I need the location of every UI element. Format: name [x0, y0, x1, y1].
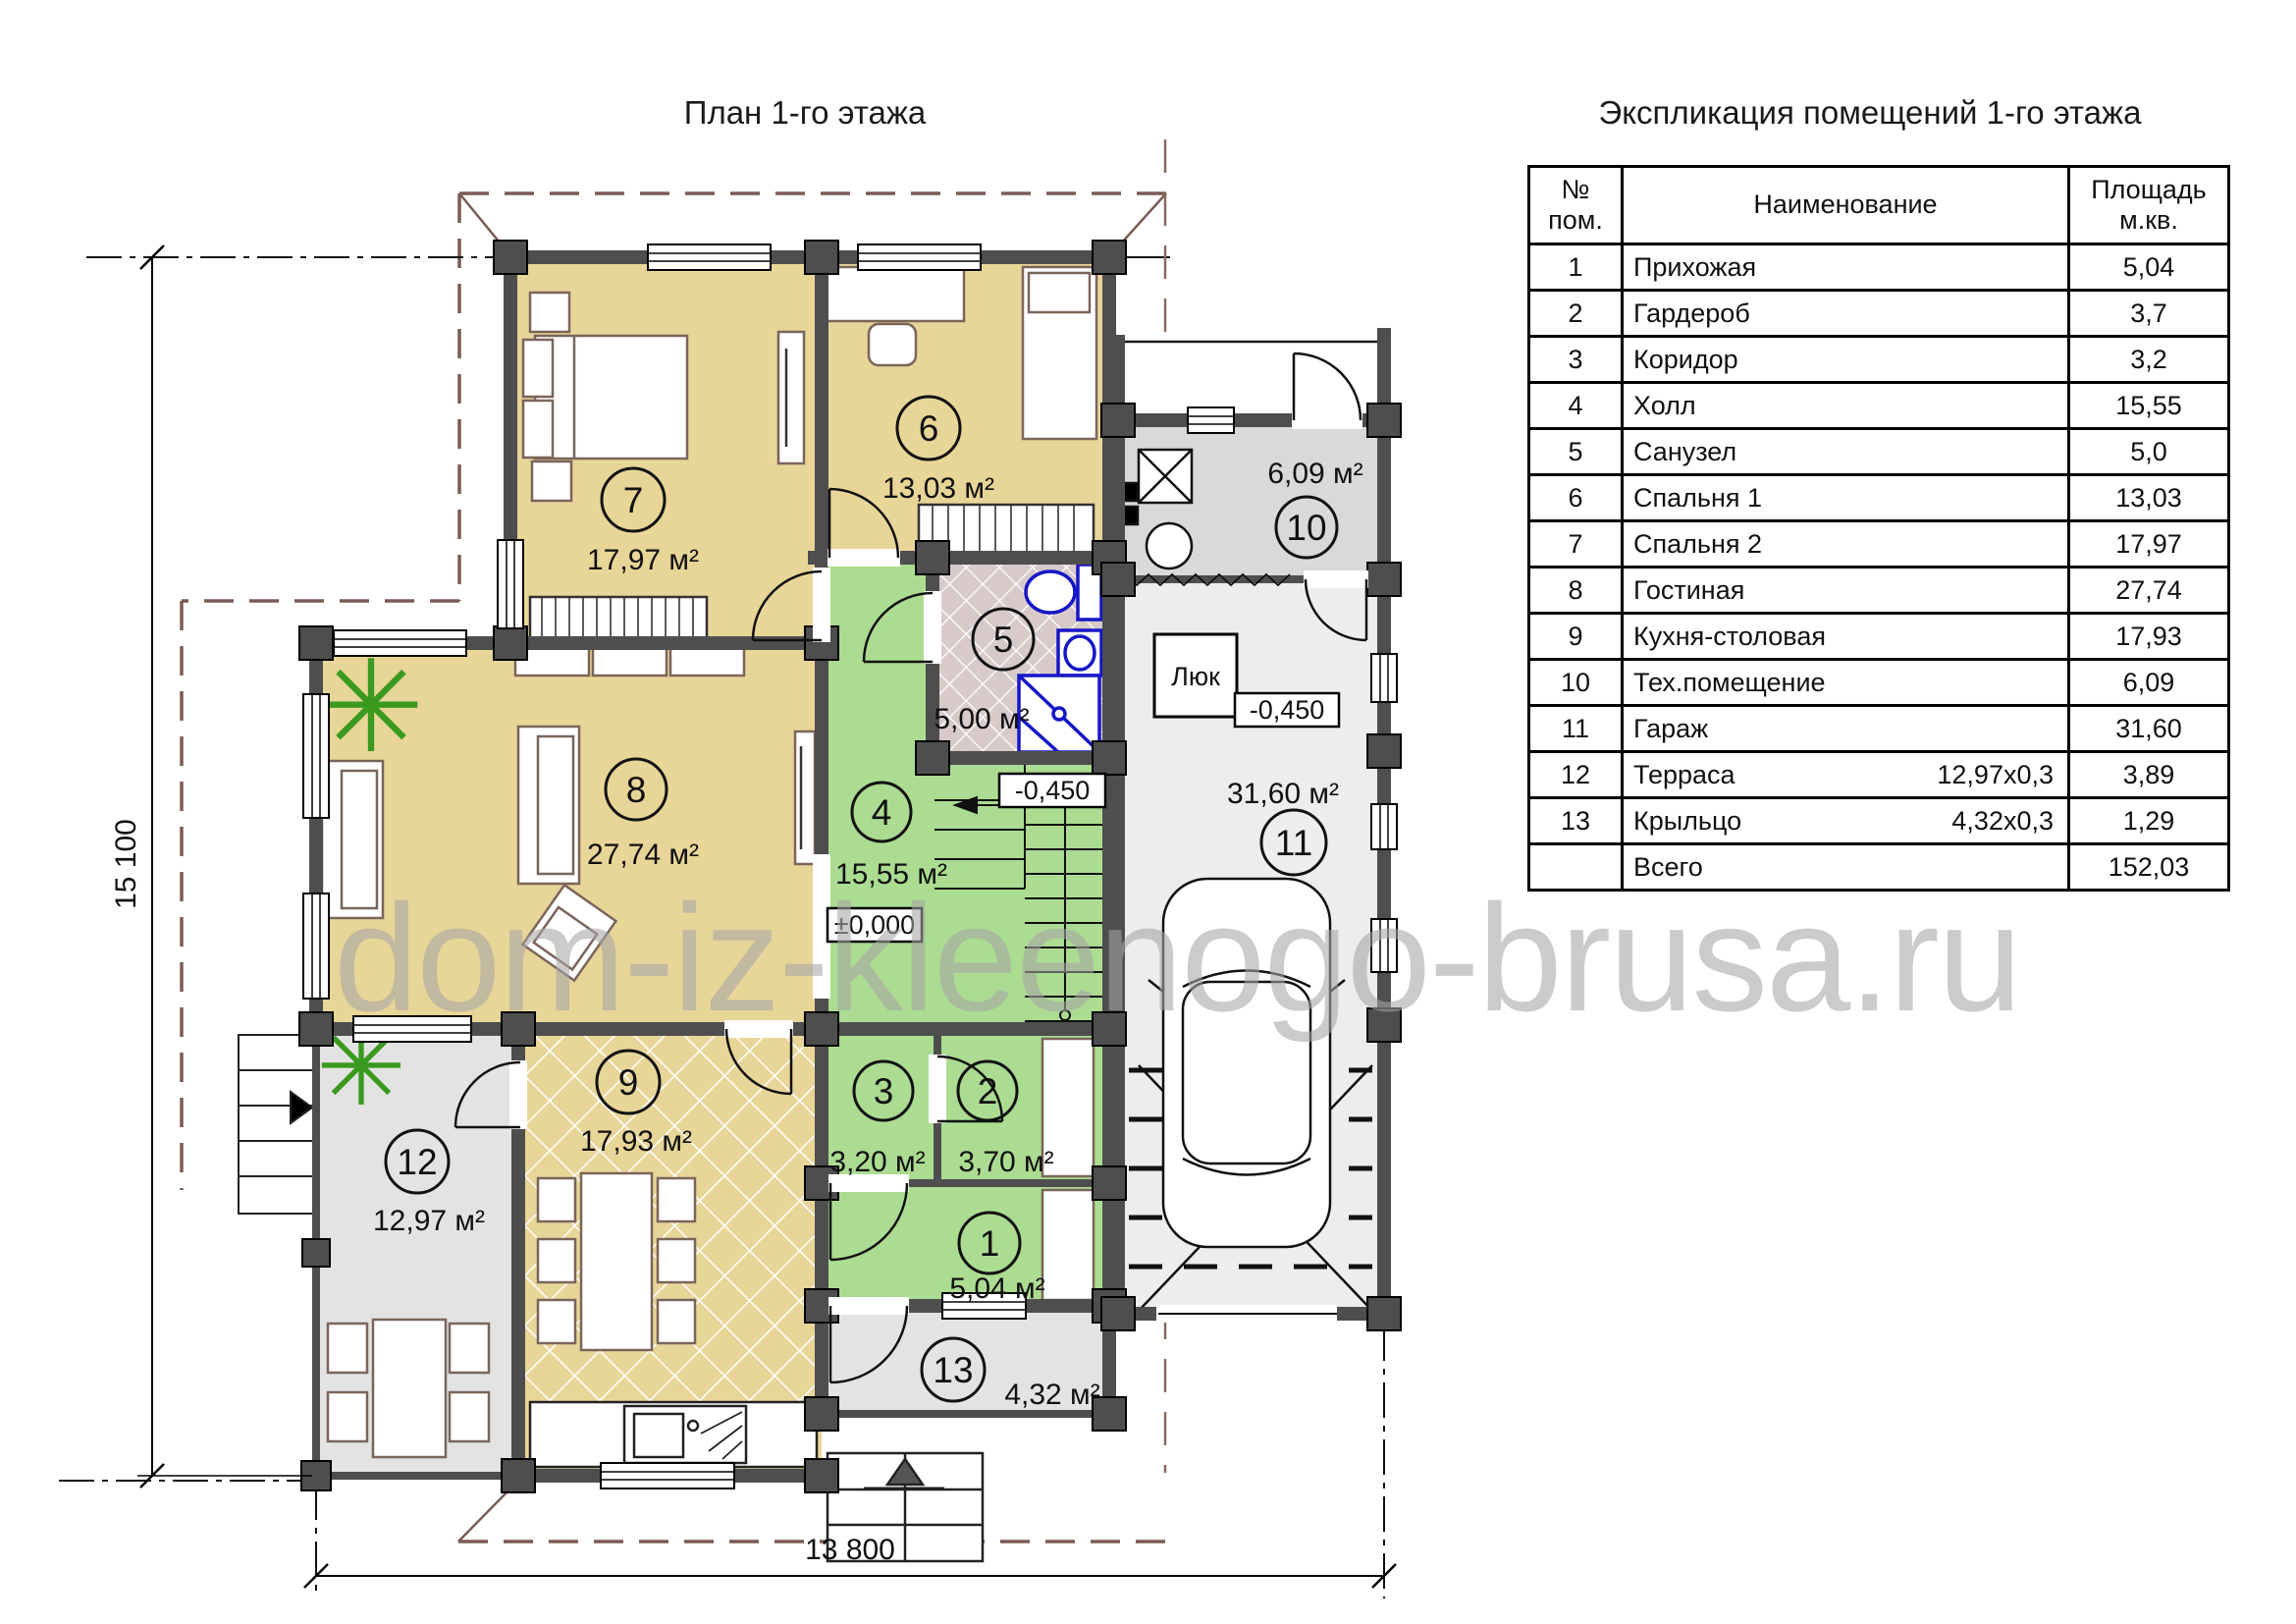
- dining-table-kitchen: [538, 1173, 695, 1350]
- cell-room-number: 3: [1529, 337, 1623, 383]
- table-row: 6Спальня 113,03: [1529, 475, 2229, 521]
- cell-room-area: 31,60: [2069, 706, 2229, 752]
- cell-room-area: 17,97: [2069, 521, 2229, 568]
- room-number: 12: [397, 1142, 437, 1182]
- cell-room-number: 8: [1529, 568, 1623, 614]
- cell-room-area: 3,2: [2069, 337, 2229, 383]
- table-row: 4Холл15,55: [1529, 383, 2229, 429]
- sideboard-room8: [515, 648, 744, 676]
- dimension-height: [137, 245, 312, 1488]
- header-area-line2: м.кв.: [2070, 205, 2227, 236]
- cell-room-name: Гардероб: [1623, 291, 2069, 337]
- car: [1148, 879, 1345, 1247]
- room-area: 15,55 м²: [835, 858, 947, 891]
- header-num-line1: №: [1530, 175, 1621, 205]
- room-number: 8: [626, 770, 647, 810]
- cell-room-name: Гараж: [1623, 706, 2069, 752]
- cell-room-number: 4: [1529, 383, 1623, 429]
- room-name-text: Холл: [1633, 391, 1696, 421]
- bed-single: [1023, 267, 1096, 439]
- room-number: 9: [618, 1062, 639, 1103]
- cell-room-name: Крыльцо4,32х0,3: [1623, 798, 2069, 844]
- sink-icon: [1058, 630, 1101, 676]
- room-area: 27,74 м²: [587, 839, 699, 871]
- cell-room-name: Спальня 1: [1623, 475, 2069, 521]
- hatch-label: Люк: [1171, 662, 1220, 691]
- cell-room-number: 11: [1529, 706, 1623, 752]
- tv-cabinet-room7: [778, 332, 804, 463]
- cell-room-area: 15,55: [2069, 383, 2229, 429]
- room-area: 4,32 м²: [1004, 1379, 1099, 1411]
- cell-room-number: 13: [1529, 798, 1623, 844]
- room-dims-text: 4,32х0,3: [1951, 806, 2054, 837]
- room-name-text: Санузел: [1633, 437, 1736, 467]
- cell-room-number: 2: [1529, 291, 1623, 337]
- cell-room-number: 5: [1529, 429, 1623, 475]
- plan-title: План 1-го этажа: [510, 94, 1099, 132]
- cell-room-number: 1: [1529, 244, 1623, 291]
- cell-room-name: Гостиная: [1623, 568, 2069, 614]
- zero-level-label: ±0,000: [834, 910, 915, 940]
- cell-room-number: 10: [1529, 660, 1623, 706]
- room-area: 31,60 м²: [1227, 778, 1339, 810]
- stairs-level-label: -0,450: [1015, 776, 1091, 805]
- room-dims-text: 12,97х0,3: [1937, 760, 2054, 790]
- table-row: 5Санузел5,0: [1529, 429, 2229, 475]
- explication-body: 1Прихожая5,042Гардероб3,73Коридор3,24Хол…: [1529, 244, 2229, 891]
- cell-room-number: 9: [1529, 614, 1623, 660]
- cell-room-name: Прихожая: [1623, 244, 2069, 291]
- cell-room-name: Коридор: [1623, 337, 2069, 383]
- closet-room1: [1042, 1190, 1094, 1300]
- room-area: 12,97 м²: [373, 1205, 485, 1237]
- room-number: 5: [993, 620, 1014, 660]
- room-area: 3,20 м²: [829, 1146, 925, 1178]
- room-name-text: Тех.помещение: [1633, 668, 1826, 698]
- table-row: 7Спальня 217,97: [1529, 521, 2229, 568]
- garage-level-label: -0,450: [1250, 695, 1325, 725]
- cell-room-area: 13,03: [2069, 475, 2229, 521]
- header-cell-name: Наименование: [1623, 167, 2069, 244]
- room-area: 3,70 м²: [958, 1146, 1053, 1178]
- dimension-height-label: 15 100: [110, 819, 142, 909]
- cell-room-name: Кухня-столовая: [1623, 614, 2069, 660]
- sofa-left: [322, 761, 383, 918]
- table-row: 13Крыльцо4,32х0,31,29: [1529, 798, 2229, 844]
- cell-room-number: [1529, 844, 1623, 891]
- header-num-line2: пом.: [1530, 205, 1621, 236]
- table-row: 2Гардероб3,7: [1529, 291, 2229, 337]
- cell-room-area: 152,03: [2069, 844, 2229, 891]
- explication-table: № пом. Наименование Площадь м.кв. 1Прихо…: [1527, 165, 2230, 892]
- header-cell-num: № пом.: [1529, 167, 1623, 244]
- explication-title: Экспликация помещений 1-го этажа: [1520, 94, 2220, 132]
- room-name-text: Коридор: [1633, 345, 1738, 375]
- room-number: 3: [874, 1071, 894, 1111]
- table-row: 3Коридор3,2: [1529, 337, 2229, 383]
- room-number: 11: [1275, 823, 1312, 863]
- cell-room-number: 7: [1529, 521, 1623, 568]
- room-number: 4: [872, 792, 892, 833]
- header-row: № пом. Наименование Площадь м.кв.: [1529, 167, 2229, 244]
- room-number: 1: [980, 1223, 1000, 1264]
- room-name-text: Спальня 1: [1633, 483, 1762, 514]
- cell-room-area: 3,89: [2069, 752, 2229, 798]
- room-number: 10: [1286, 508, 1326, 548]
- dimension-width: [304, 1564, 1396, 1588]
- cell-room-name: Тех.помещение: [1623, 660, 2069, 706]
- washer-icon: [1139, 450, 1192, 503]
- room-area: 6,09 м²: [1267, 458, 1362, 490]
- dimension-width-label: 13 800: [805, 1534, 895, 1566]
- table-row: 10Тех.помещение6,09: [1529, 660, 2229, 706]
- table-row: 12Терраса12,97х0,33,89: [1529, 752, 2229, 798]
- room-number: 7: [623, 480, 644, 520]
- table-row: 1Прихожая5,04: [1529, 244, 2229, 291]
- room-name-text: Всего: [1633, 852, 1703, 883]
- cell-room-name: Холл: [1623, 383, 2069, 429]
- cell-room-area: 1,29: [2069, 798, 2229, 844]
- room-area: 17,93 м²: [580, 1125, 692, 1158]
- floor-plan-page: ✳ ✳: [0, 0, 2296, 1624]
- table-row: Всего152,03: [1529, 844, 2229, 891]
- room-name-text: Терраса: [1633, 760, 1735, 790]
- sofa-center: [518, 727, 579, 884]
- room-area: 13,03 м²: [882, 472, 994, 505]
- room-name-text: Спальня 2: [1633, 529, 1762, 560]
- room-area: 17,97 м²: [587, 544, 699, 576]
- cell-room-name: Санузел: [1623, 429, 2069, 475]
- header-area-line1: Площадь: [2070, 175, 2227, 205]
- room-area: 5,04 м²: [949, 1272, 1044, 1305]
- entry-porch-fill: [1114, 342, 1384, 420]
- cell-room-area: 27,74: [2069, 568, 2229, 614]
- table-row: 8Гостиная27,74: [1529, 568, 2229, 614]
- room-area: 5,00 м²: [934, 703, 1029, 735]
- room-name-text: Гараж: [1633, 714, 1708, 744]
- header-cell-area: Площадь м.кв.: [2069, 167, 2229, 244]
- cell-room-area: 6,09: [2069, 660, 2229, 706]
- terrace-stairs: [239, 1035, 315, 1214]
- room-number: 13: [933, 1350, 973, 1390]
- room-number: 6: [919, 408, 939, 449]
- room-name-text: Гостиная: [1633, 575, 1744, 606]
- room-number: 2: [978, 1071, 998, 1111]
- explication-header: № пом. Наименование Площадь м.кв.: [1529, 167, 2229, 244]
- kitchen-counter: [530, 1402, 817, 1467]
- tv-room8: [795, 731, 815, 864]
- room-name-text: Гардероб: [1633, 298, 1750, 329]
- room-name-text: Кухня-столовая: [1633, 622, 1826, 652]
- cell-room-name: Всего: [1623, 844, 2069, 891]
- cell-room-number: 6: [1529, 475, 1623, 521]
- toilet-icon: [1026, 565, 1101, 620]
- room-name-text: Крыльцо: [1633, 806, 1741, 837]
- cell-room-name: Спальня 2: [1623, 521, 2069, 568]
- cell-room-number: 12: [1529, 752, 1623, 798]
- room-name-text: Прихожая: [1633, 252, 1756, 283]
- boiler-icon: [1147, 523, 1192, 568]
- shower-icon: [1019, 676, 1099, 752]
- cell-room-area: 3,7: [2069, 291, 2229, 337]
- cell-room-area: 5,0: [2069, 429, 2229, 475]
- table-row: 9Кухня-столовая17,93: [1529, 614, 2229, 660]
- table-row: 11Гараж31,60: [1529, 706, 2229, 752]
- cell-room-name: Терраса12,97х0,3: [1623, 752, 2069, 798]
- cell-room-area: 5,04: [2069, 244, 2229, 291]
- cell-room-area: 17,93: [2069, 614, 2229, 660]
